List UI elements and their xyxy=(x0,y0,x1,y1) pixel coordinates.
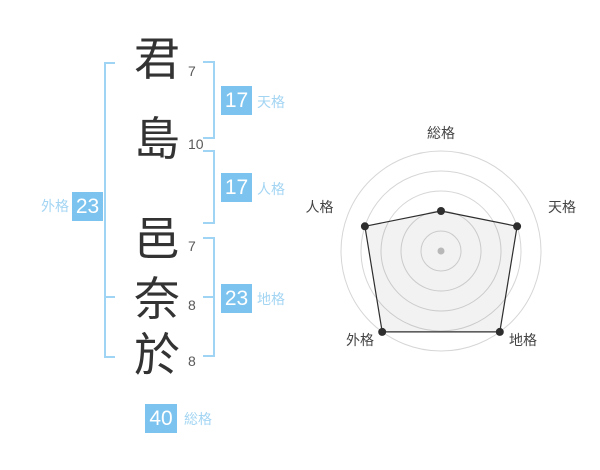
chikaku-value-badge: 23 xyxy=(221,284,252,313)
name-char-1: 君 xyxy=(134,36,180,82)
radar-center-dot xyxy=(438,248,445,255)
chikaku-label: 地格 xyxy=(257,292,285,307)
radar-vertex-dot xyxy=(437,207,445,215)
name-char-5: 於 xyxy=(134,332,180,378)
radar-chart: 総格天格地格外格人格 xyxy=(306,116,586,366)
tenkaku-label: 天格 xyxy=(257,95,285,110)
radar-axis-label: 総格 xyxy=(427,125,455,141)
soukaku-label: 総格 xyxy=(184,412,212,427)
gaikaku-label: 外格 xyxy=(41,199,69,214)
name-char-4: 奈 xyxy=(134,276,180,322)
tenkaku-value-badge: 17 xyxy=(221,86,252,115)
name-char-3: 邑 xyxy=(134,216,180,262)
jinkaku-value-badge: 17 xyxy=(221,173,252,202)
name-char-2: 島 xyxy=(134,116,180,162)
radar-vertex-dot xyxy=(513,222,521,230)
radar-axis-label: 天格 xyxy=(548,199,576,215)
soukaku-value-badge: 40 xyxy=(145,404,177,433)
stroke-count-2: 10 xyxy=(188,137,214,151)
radar-vertex-dot xyxy=(496,328,504,336)
stroke-count-3: 7 xyxy=(188,239,214,253)
stroke-count-1: 7 xyxy=(188,64,214,78)
gaikaku-value-badge: 23 xyxy=(72,192,103,221)
radar-axis-label: 人格 xyxy=(306,199,334,215)
radar-axis-label: 外格 xyxy=(346,332,374,348)
stroke-count-4: 8 xyxy=(188,298,214,312)
radar-vertex-dot xyxy=(361,222,369,230)
radar-vertex-dot xyxy=(378,328,386,336)
radar-polygon xyxy=(365,211,517,332)
radar-axis-label: 地格 xyxy=(509,332,537,348)
jinkaku-label: 人格 xyxy=(257,182,285,197)
name-fortune-panel: 君 島 邑 奈 於 7 10 7 8 8 外格 23 17 天格 17 人格 2… xyxy=(0,0,600,470)
